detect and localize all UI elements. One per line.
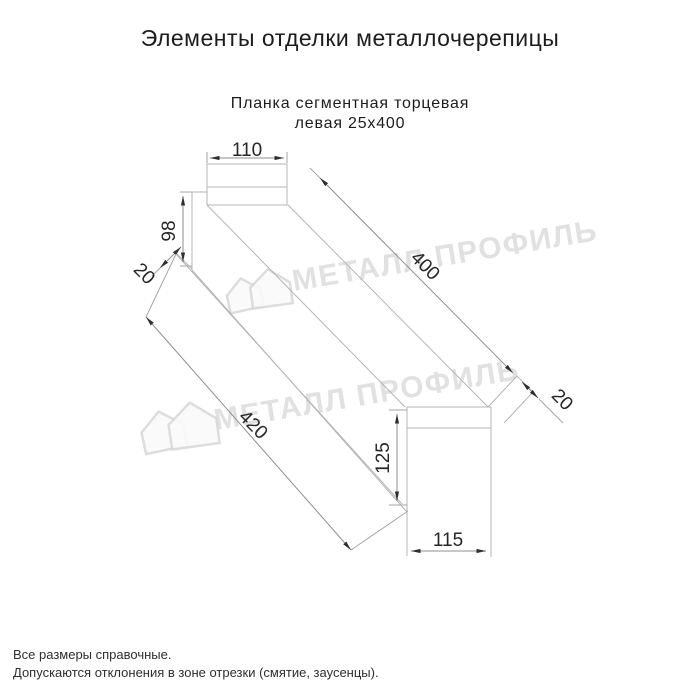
watermark-lower: МЕТАЛЛ ПРОФИЛЬ [138,353,522,454]
footer-note-2: Допускаются отклонения в зоне отрезки (с… [13,664,379,682]
dim-far-lip-label: 20 [547,385,577,415]
near-hem-edge [176,253,192,269]
watermark-text: МЕТАЛЛ ПРОФИЛЬ [290,214,600,298]
ext-line [180,192,192,266]
dim-far-height-label: 125 [373,442,394,474]
dim-near-height-label: 98 [159,220,180,241]
footer-notes: Все размеры справочные. Допускаются откл… [13,646,379,682]
brand-house-icon [248,266,293,308]
drawing-canvas: Элементы отделки металлочерепицы Планка … [0,0,700,700]
footer-note-1: Все размеры справочные. [13,646,379,664]
dimensions: 110 98 20 400 420 20 125 [129,140,577,551]
dim-near-hem-label: 20 [129,259,159,289]
dim-far-width-label: 115 [433,530,463,551]
technical-drawing: МЕТАЛЛ ПРОФИЛЬ МЕТАЛЛ ПРОФИЛЬ [0,0,700,700]
near-flange-face [207,164,287,205]
dim-flange-width-label: 110 [232,140,262,161]
ext-line [310,168,320,178]
